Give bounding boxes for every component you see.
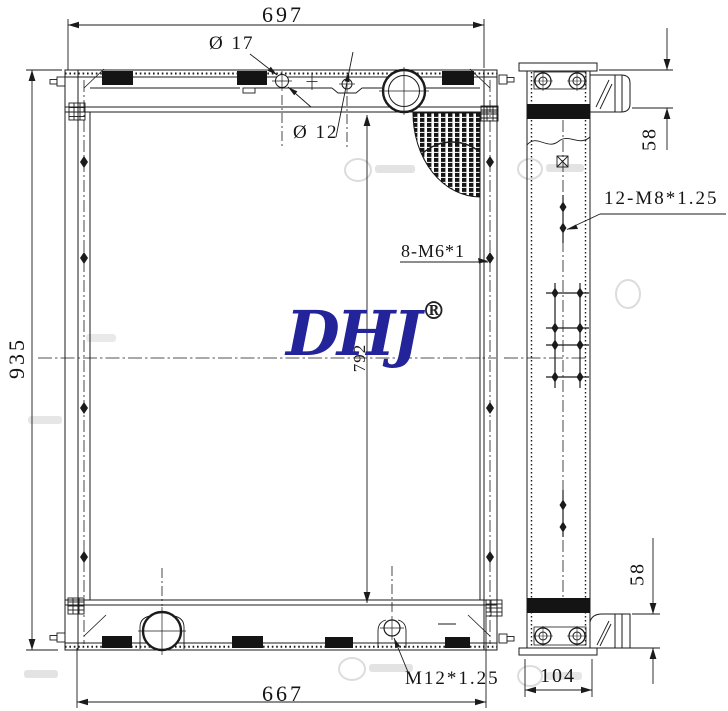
callout-drain-thread: M12*1.25 (405, 668, 500, 690)
registered-trademark-icon: ® (422, 299, 446, 323)
side-thread-points (552, 202, 584, 533)
callout-small-hole: Ø 12 (293, 122, 338, 144)
callout-frame-threads: 8-M6*1 (401, 241, 465, 262)
brand-logo: DHJ® (286, 303, 443, 365)
radiator-technical-drawing: 697 935 667 792 Ø 17 Ø 12 8-M6*1 12-M8*1… (0, 0, 728, 711)
side-view (504, 63, 630, 655)
dim-tank-bottom: 58 (627, 562, 650, 586)
dim-overall-width: 697 (262, 2, 304, 28)
callout-side-threads: 12-M8*1.25 (604, 188, 718, 210)
dim-side-depth: 104 (540, 665, 576, 688)
outlet-pipe (138, 568, 186, 655)
callout-filler-hole: Ø 17 (209, 33, 254, 55)
brand-logo-text: DHJ (286, 303, 419, 365)
dim-tank-top: 58 (639, 127, 662, 151)
drain-hole-m12 (378, 566, 456, 672)
dim-bottom-width: 667 (262, 681, 304, 707)
hole-dia12 (336, 52, 355, 148)
dim-overall-height: 935 (4, 337, 30, 379)
